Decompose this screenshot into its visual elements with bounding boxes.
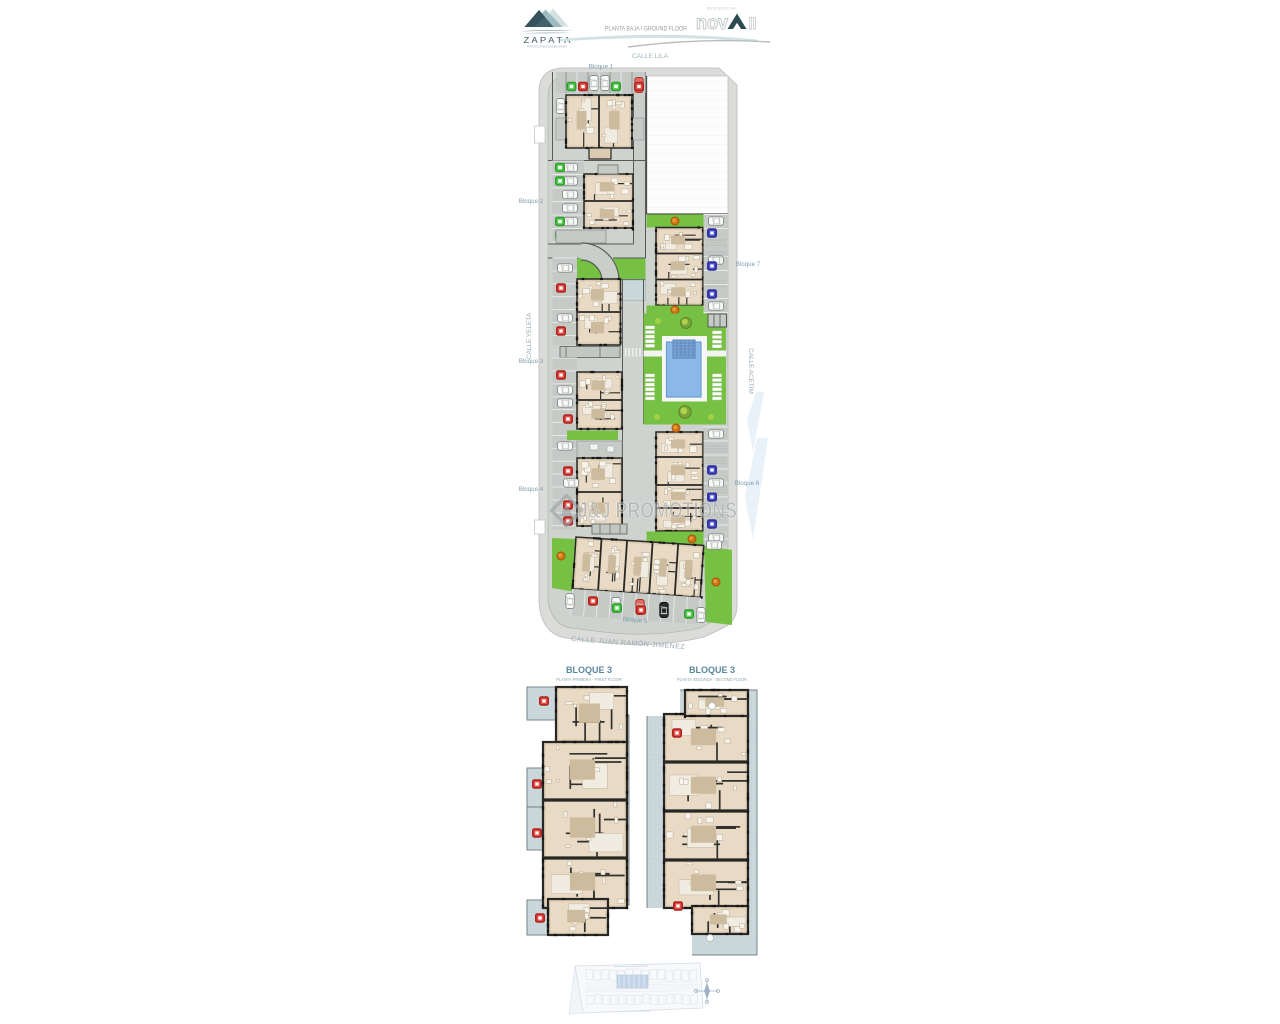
svg-text:PLANTA SEGUNDA - SECOND FLOOR: PLANTA SEGUNDA - SECOND FLOOR bbox=[677, 677, 747, 682]
svg-text:PROMOCIONES INMOBILIARIAS: PROMOCIONES INMOBILIARIAS bbox=[527, 45, 567, 49]
svg-text:CALLE YELETA: CALLE YELETA bbox=[526, 312, 533, 359]
svg-text:BLOQUE 3: BLOQUE 3 bbox=[566, 665, 612, 675]
svg-text:PLANTA PRIMERA - FIRST FLOOR: PLANTA PRIMERA - FIRST FLOOR bbox=[556, 677, 622, 682]
svg-text:PLANTA BAJA / GROUND FLOOR: PLANTA BAJA / GROUND FLOOR bbox=[605, 26, 687, 33]
svg-text:RESIDENCIAL: RESIDENCIAL bbox=[707, 7, 737, 11]
svg-text:J&J PROMOTIONS: J&J PROMOTIONS bbox=[578, 497, 737, 523]
svg-text:Bloque 4: Bloque 4 bbox=[519, 486, 544, 493]
svg-text:nov: nov bbox=[696, 13, 728, 34]
svg-text:Bloque 2: Bloque 2 bbox=[519, 198, 544, 205]
svg-text:Bloque 7: Bloque 7 bbox=[736, 261, 761, 268]
svg-text:BLOQUE 3: BLOQUE 3 bbox=[689, 665, 735, 675]
svg-text:CALLE ACETIM: CALLE ACETIM bbox=[747, 348, 754, 394]
svg-text:Bloque 1: Bloque 1 bbox=[589, 64, 614, 71]
svg-text:Bloque 6: Bloque 6 bbox=[735, 480, 760, 487]
svg-text:II: II bbox=[749, 14, 757, 33]
svg-text:CALLE LILA: CALLE LILA bbox=[632, 53, 669, 60]
